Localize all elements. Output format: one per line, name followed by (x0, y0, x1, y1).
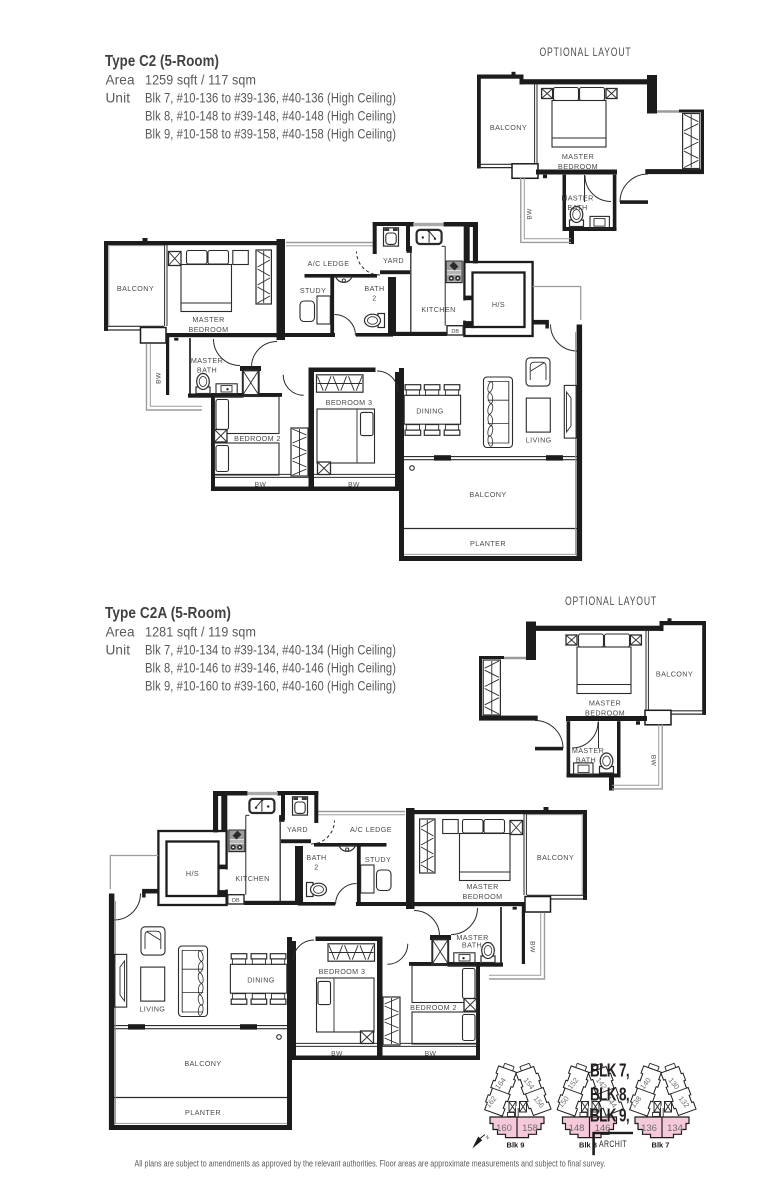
svg-text:PLANTER: PLANTER (470, 539, 506, 548)
svg-text:BW: BW (527, 208, 534, 220)
svg-text:Blk 8, #10-148 to #39-148, #40: Blk 8, #10-148 to #39-148, #40-148 (High… (145, 109, 396, 124)
svg-text:Blk 7, #10-136 to #39-136, #40: Blk 7, #10-136 to #39-136, #40-136 (High… (145, 91, 396, 106)
svg-text:BATH: BATH (567, 203, 587, 212)
svg-text:2: 2 (372, 294, 376, 303)
svg-text:MASTER: MASTER (572, 746, 604, 755)
svg-text:Area: Area (106, 73, 135, 88)
svg-text:BW: BW (650, 755, 657, 767)
svg-text:YARD: YARD (383, 256, 404, 265)
svg-text:DINING: DINING (247, 976, 275, 985)
svg-text:DINING: DINING (416, 407, 444, 416)
svg-text:BW: BW (156, 372, 163, 384)
svg-text:Type C2 (5-Room): Type C2 (5-Room) (105, 53, 219, 70)
svg-text:LIVING: LIVING (526, 436, 552, 445)
svg-text:BLK 9,: BLK 9, (590, 1106, 629, 1126)
svg-text:KITCHEN: KITCHEN (421, 305, 455, 314)
svg-text:MASTER: MASTER (561, 194, 593, 203)
svg-text:DB: DB (451, 329, 459, 335)
svg-text:BEDROOM 3: BEDROOM 3 (326, 398, 373, 407)
svg-text:Unit: Unit (106, 643, 131, 658)
svg-text:DB: DB (232, 898, 240, 904)
svg-text:Type C2A (5-Room): Type C2A (5-Room) (105, 605, 231, 622)
svg-text:Blk 8, #10-146 to #39-146, #40: Blk 8, #10-146 to #39-146, #40-146 (High… (145, 661, 396, 676)
svg-text:1281 sqft / 119 sqm: 1281 sqft / 119 sqm (145, 625, 256, 640)
svg-text:KITCHEN: KITCHEN (235, 874, 269, 883)
svg-text:YARD: YARD (287, 825, 308, 834)
svg-text:BATH: BATH (306, 853, 326, 862)
svg-text:BEDROOM 2: BEDROOM 2 (410, 1003, 457, 1012)
svg-text:BALCONY: BALCONY (469, 490, 506, 499)
svg-text:148: 148 (569, 1123, 585, 1134)
svg-text:158: 158 (522, 1123, 538, 1134)
svg-text:BALCONY: BALCONY (537, 853, 574, 862)
svg-text:Blk 7: Blk 7 (652, 1141, 670, 1150)
svg-text:Unit: Unit (106, 91, 131, 106)
svg-text:OPTIONAL LAYOUT: OPTIONAL LAYOUT (565, 596, 657, 608)
svg-text:MASTER: MASTER (589, 699, 621, 708)
svg-text:Blk 9: Blk 9 (507, 1141, 525, 1150)
svg-text:160: 160 (496, 1123, 512, 1134)
svg-text:MASTER: MASTER (562, 152, 594, 161)
svg-text:Blk 7, #10-134 to #39-134, #40: Blk 7, #10-134 to #39-134, #40-134 (High… (145, 643, 396, 658)
svg-text:136: 136 (641, 1123, 657, 1134)
svg-text:H/S: H/S (186, 869, 199, 878)
svg-text:BEDROOM: BEDROOM (189, 325, 229, 334)
svg-text:MASTER: MASTER (192, 315, 224, 324)
svg-text:BW: BW (331, 1051, 343, 1058)
svg-text:BATH: BATH (364, 284, 384, 293)
svg-text:Area: Area (106, 625, 135, 640)
svg-text:BALCONY: BALCONY (656, 670, 693, 679)
svg-text:A/C LEDGE: A/C LEDGE (350, 825, 392, 834)
svg-text:BW: BW (348, 482, 360, 489)
svg-text:All plans are subject to amend: All plans are subject to amendments as a… (135, 1159, 606, 1169)
svg-text:BALCONY: BALCONY (117, 284, 154, 293)
svg-text:LIVING: LIVING (139, 1005, 165, 1014)
svg-text:N: N (485, 1134, 491, 1140)
svg-text:MASTER: MASTER (466, 882, 498, 891)
svg-text:134: 134 (667, 1123, 683, 1134)
svg-text:BATH: BATH (462, 941, 482, 950)
svg-text:STUDY: STUDY (365, 855, 391, 864)
svg-text:Blk 9, #10-158 to #39-158, #40: Blk 9, #10-158 to #39-158, #40-158 (High… (145, 127, 396, 142)
svg-text:BEDROOM: BEDROOM (558, 162, 598, 171)
svg-text:BEDROOM 2: BEDROOM 2 (234, 434, 281, 443)
svg-text:BEDROOM: BEDROOM (585, 709, 625, 718)
svg-text:PLANTER: PLANTER (185, 1108, 221, 1117)
svg-text:BW: BW (255, 482, 267, 489)
svg-text:BW: BW (529, 941, 536, 953)
svg-text:BATH: BATH (576, 756, 596, 765)
svg-text:MASTER: MASTER (191, 356, 223, 365)
svg-text:Blk 9, #10-160 to #39-160, #40: Blk 9, #10-160 to #39-160, #40-160 (High… (145, 679, 396, 694)
svg-text:STUDY: STUDY (300, 286, 326, 295)
svg-text:H/S: H/S (492, 300, 505, 309)
svg-text:BALCONY: BALCONY (184, 1059, 221, 1068)
svg-text:A/C LEDGE: A/C LEDGE (308, 259, 350, 268)
svg-text:ARCHIT: ARCHIT (599, 1139, 627, 1150)
svg-text:OPTIONAL LAYOUT: OPTIONAL LAYOUT (540, 47, 632, 59)
svg-text:BW: BW (425, 1051, 437, 1058)
svg-text:BLK 8,: BLK 8, (590, 1085, 629, 1105)
svg-text:BALCONY: BALCONY (490, 123, 527, 132)
svg-text:BEDROOM: BEDROOM (463, 892, 503, 901)
svg-text:BATH: BATH (197, 366, 217, 375)
svg-text:1259 sqft / 117 sqm: 1259 sqft / 117 sqm (145, 73, 256, 88)
svg-text:BEDROOM 3: BEDROOM 3 (319, 967, 366, 976)
svg-text:2: 2 (314, 863, 318, 872)
svg-text:BLK 7,: BLK 7, (590, 1061, 629, 1081)
